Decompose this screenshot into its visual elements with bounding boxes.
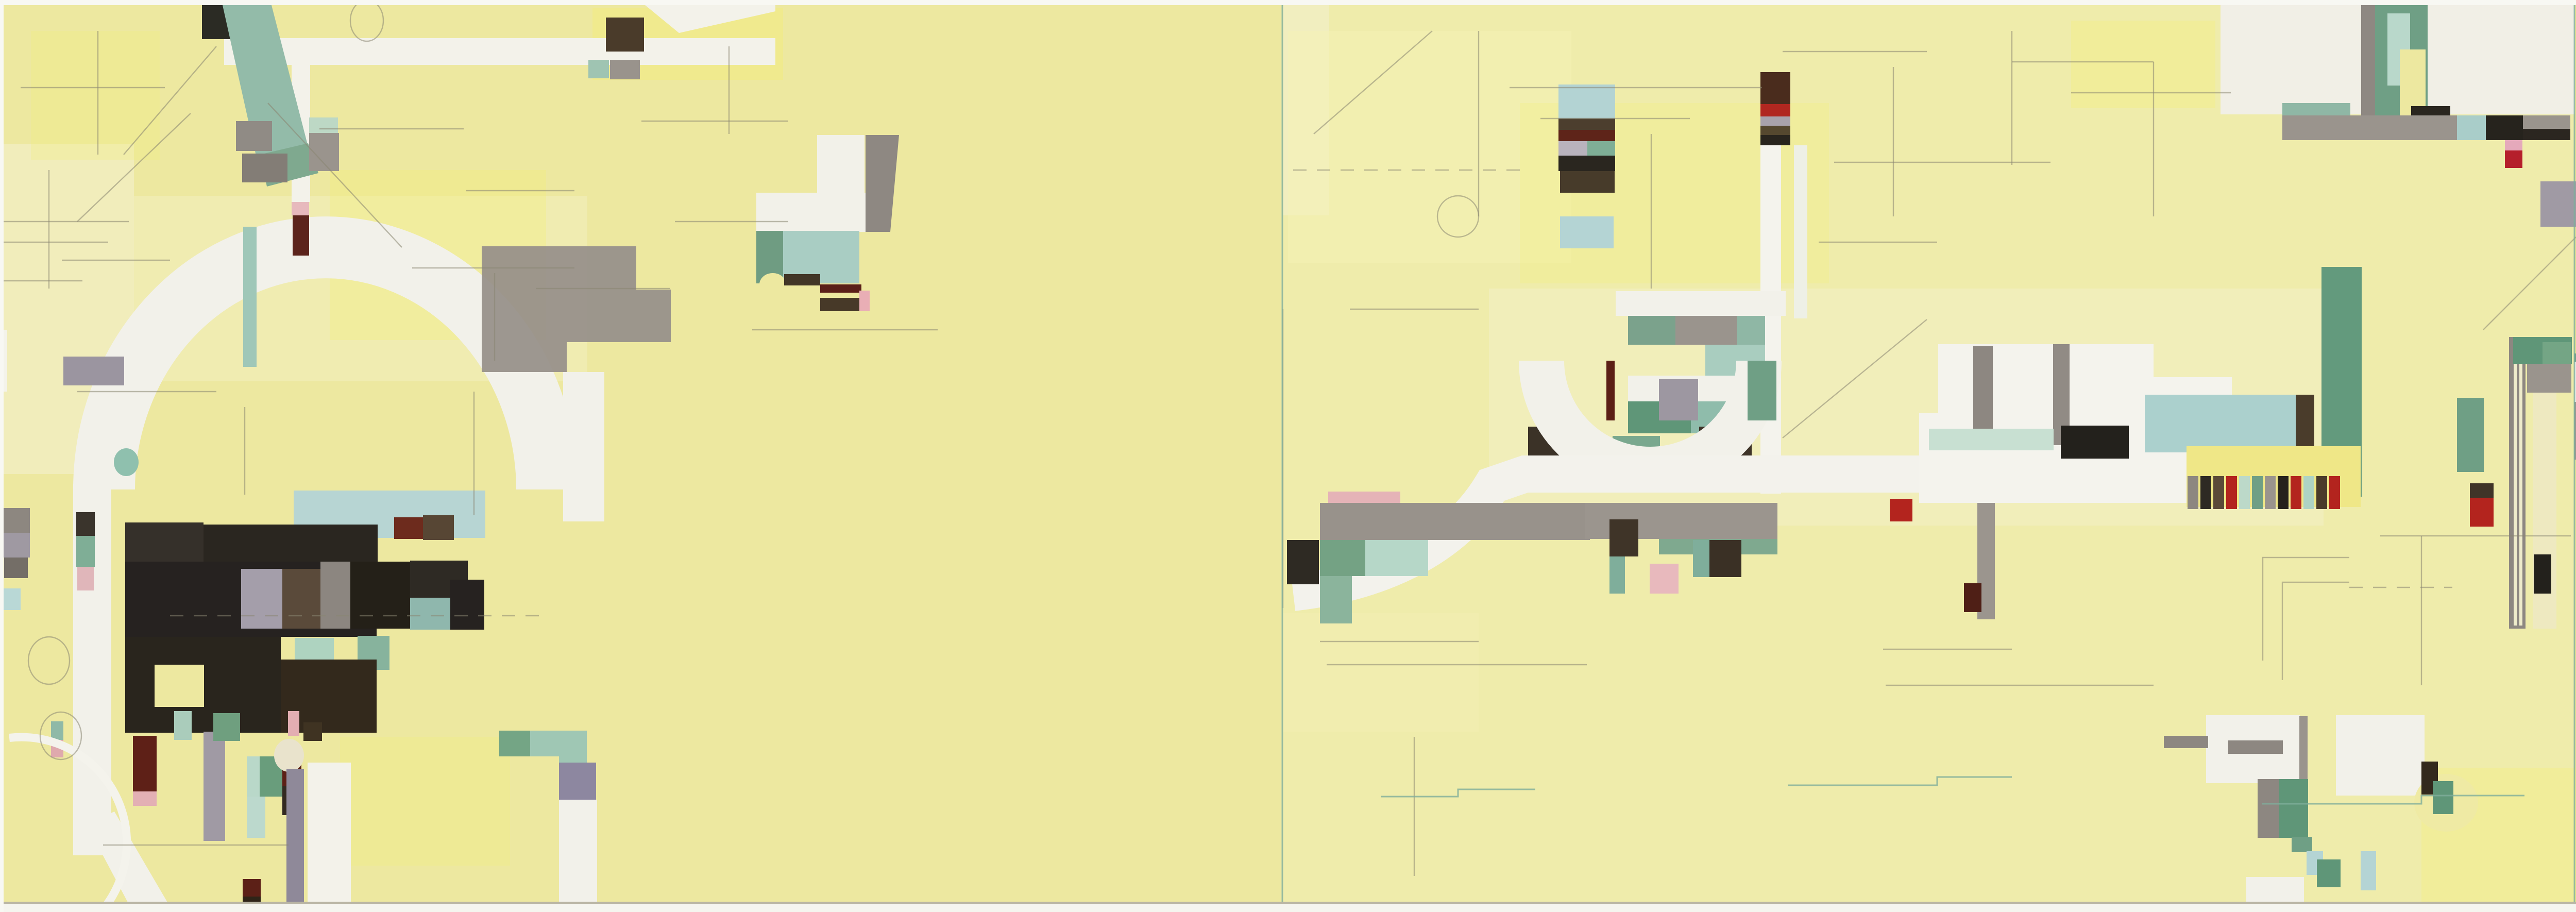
sage-band (2457, 398, 2484, 472)
cluster-lavender (241, 569, 282, 629)
cluster-black (350, 562, 410, 629)
brown-bar (820, 298, 860, 311)
edge-block (0, 533, 30, 558)
frame-teal (1737, 316, 1765, 345)
teal-row (1320, 576, 1352, 623)
wash (1283, 613, 1479, 732)
barcode (2252, 476, 2263, 509)
seam-cream-line (2514, 340, 2517, 626)
teal-square (588, 60, 609, 78)
u-lavender (1659, 379, 1698, 420)
brown-chip (2470, 483, 2494, 498)
teal-dot (114, 448, 139, 476)
gray-band (2523, 115, 2570, 129)
arch-right-leg (563, 372, 604, 521)
red-square (1890, 499, 1912, 521)
seam-gray-block (2527, 364, 2571, 393)
white-L-vertical (817, 135, 865, 196)
green-strip (2282, 103, 2350, 115)
black-block (2486, 115, 2523, 140)
totem-band (1558, 141, 1587, 156)
pink-cap (292, 202, 309, 215)
teal-column (1609, 556, 1625, 594)
gun-gray-arm (2164, 736, 2208, 748)
gun-gray-inner (2228, 740, 2283, 754)
pink-strip (1328, 492, 1400, 503)
gray-block (242, 154, 287, 182)
barcode (2303, 476, 2314, 509)
white-column (1794, 145, 1807, 318)
artwork-scan (0, 0, 2576, 912)
maroon-rod (133, 736, 157, 791)
pink-cap (133, 791, 157, 806)
red-square (2470, 498, 2494, 527)
gray-band (1320, 503, 1590, 540)
barcode (2278, 476, 2289, 509)
maroon-stack (243, 879, 261, 897)
mass-black (2061, 426, 2129, 459)
bracket-green (2433, 781, 2453, 814)
totem-band (1558, 119, 1615, 130)
totem-band (1587, 141, 1615, 156)
barcode (2213, 476, 2224, 509)
teal-bar (1748, 361, 1776, 420)
totem-band (1558, 156, 1615, 171)
top-white-bar (224, 38, 775, 65)
pink-bar (288, 711, 299, 736)
brown-square (303, 722, 322, 741)
black-block (1287, 540, 1319, 584)
gray-plate (63, 357, 124, 385)
gun-green-leg (2279, 779, 2308, 838)
totem-band (1558, 85, 1615, 119)
barcode (2188, 476, 2198, 509)
barcode (2329, 476, 2340, 509)
white-column (308, 763, 351, 912)
teal-rod (243, 227, 257, 367)
chip (2361, 851, 2376, 890)
totem2-band (1760, 72, 1790, 104)
pink-tab (859, 291, 870, 311)
maroon-chip (1964, 583, 1981, 612)
barcode (2226, 476, 2237, 509)
cream-egg (274, 739, 304, 772)
teal-row (1320, 540, 1365, 576)
maroon-cap (293, 215, 309, 256)
aqua-section (2457, 115, 2486, 140)
seam-cream-line (2519, 340, 2522, 626)
edge-block (0, 508, 30, 533)
chip (2317, 859, 2341, 887)
gray-column (286, 769, 304, 912)
black-bar (2523, 129, 2570, 140)
cluster-notch (155, 665, 204, 707)
cluster-maroon (394, 517, 423, 539)
cluster-gray (320, 562, 350, 629)
barcode (2265, 476, 2276, 509)
totem-band (1558, 130, 1615, 141)
seam-black-square (2534, 554, 2551, 594)
stack-teal (76, 536, 95, 567)
painting-svg (0, 0, 2576, 912)
gray-column (559, 763, 596, 800)
brown-bar (784, 274, 820, 285)
maroon-rod (1606, 361, 1615, 420)
dark-chip (1609, 519, 1638, 556)
white-L-horizontal (756, 193, 866, 232)
wash (31, 31, 160, 160)
seam-gray-column (2509, 337, 2526, 629)
chip (2292, 837, 2312, 852)
cluster-dark (125, 522, 204, 562)
door-gray (2361, 4, 2376, 120)
red-square (2505, 150, 2522, 168)
teal-chip (1693, 540, 1709, 577)
brown-square (606, 18, 644, 52)
mint-tail (247, 797, 265, 838)
arch-notch (759, 273, 786, 296)
gray-column (204, 732, 225, 841)
bracket-white (2336, 715, 2425, 796)
barcode (2291, 476, 2301, 509)
wash (2071, 21, 2215, 108)
dark-chip (1709, 540, 1741, 577)
gray-block (236, 121, 272, 151)
canvas-edge-bottom (0, 904, 2576, 912)
gray-square (610, 60, 640, 79)
frame-top-bar (1616, 291, 1786, 316)
green-square (213, 713, 240, 741)
canvas-edge-shadow (0, 902, 2576, 904)
frame-gray (1675, 316, 1737, 345)
mint-pair (247, 756, 260, 797)
totem2-band (1760, 135, 1790, 145)
gun-gray-leg (2258, 779, 2279, 838)
barcode (2200, 476, 2211, 509)
barcode (2239, 476, 2250, 509)
cluster-brown (282, 569, 320, 629)
totem2-band (1760, 116, 1790, 126)
maroon-bar (820, 284, 861, 293)
edge-block (4, 558, 28, 578)
totem2-band (1760, 104, 1790, 116)
sage-L-dark (499, 731, 530, 756)
stack-dark (76, 512, 95, 536)
canvas-edge-left (0, 0, 4, 912)
door-inner (2400, 49, 2426, 115)
mass-mint (1929, 429, 2054, 450)
cluster-tail-black (450, 580, 484, 630)
pink-wedge (1650, 564, 1679, 594)
mass-aqua (2145, 395, 2313, 452)
frame-sage (1628, 316, 1675, 345)
totem-band (1560, 171, 1615, 193)
white-column (559, 800, 597, 912)
totem2-band (1760, 126, 1790, 135)
teal-bar (174, 711, 192, 740)
mint-block (309, 117, 338, 133)
pink-square (2505, 140, 2522, 150)
cluster-brown (423, 515, 454, 540)
barcode (2316, 476, 2327, 509)
gray-square (2540, 181, 2576, 227)
panel-bg-left (0, 0, 1281, 912)
mint-row (1365, 540, 1428, 576)
wash (340, 737, 510, 866)
teal-pink-stack (51, 721, 63, 740)
blue-square (1560, 216, 1614, 248)
canvas-edge-top (0, 0, 2576, 5)
stack-pink (77, 567, 94, 590)
